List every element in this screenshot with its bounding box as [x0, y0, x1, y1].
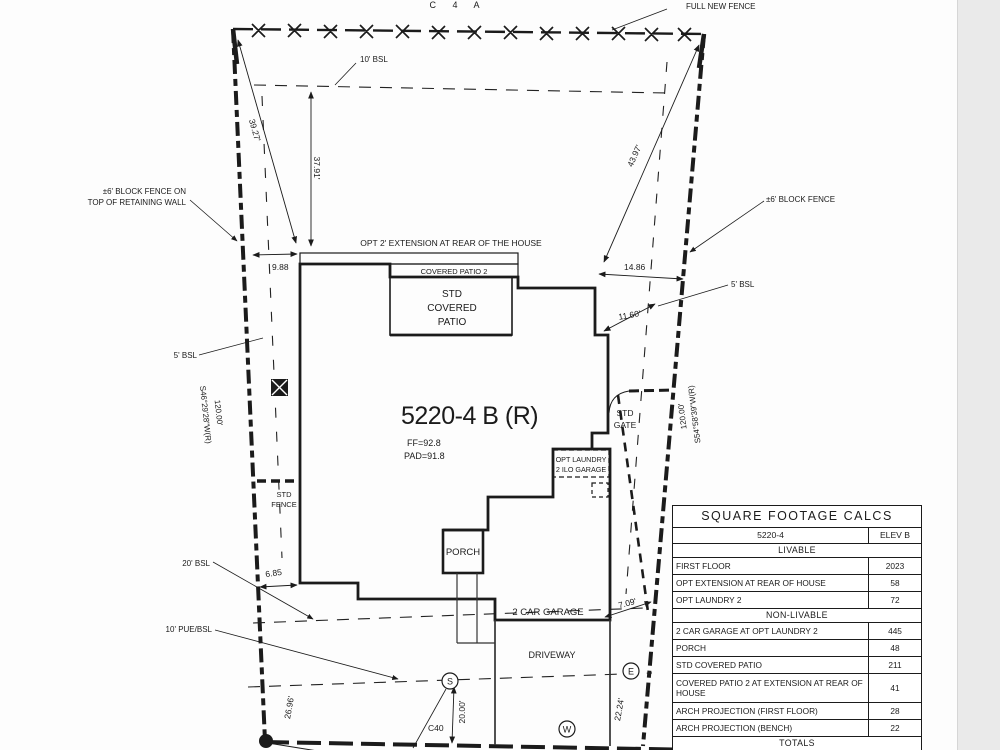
row-label: FIRST FLOOR: [673, 560, 868, 572]
label-std-fence-1: STD: [277, 490, 293, 499]
row-label: COVERED PATIO 2 AT EXTENSION AT REAR OF …: [673, 677, 868, 700]
row-label: OPT EXTENSION AT REAR OF HOUSE: [673, 577, 868, 589]
dim-22-24: 22.24': [612, 697, 626, 722]
table-row: OPT EXTENSION AT REAR OF HOUSE 58: [673, 575, 921, 592]
dim-14-86: 14.86: [624, 262, 646, 272]
label-porch: PORCH: [446, 547, 480, 558]
row-value: 211: [868, 657, 921, 673]
label-driveway: DRIVEWAY: [528, 650, 575, 660]
dim-37-91: 37.91': [312, 157, 322, 180]
dim-43-97: 43.97': [625, 143, 644, 168]
label-pad: PAD=91.8: [404, 451, 445, 461]
table-row: FIRST FLOOR 2023: [673, 558, 921, 575]
table-row: OPT LAUNDRY 2 72: [673, 592, 921, 609]
section-nonlivable: NON-LIVABLE: [673, 609, 921, 623]
bearing-left: S46°29'28"W(R): [198, 385, 213, 444]
square-footage-table: SQUARE FOOTAGE CALCS 5220-4 ELEV B LIVAB…: [672, 505, 922, 750]
section-totals: TOTALS: [673, 737, 921, 750]
opt-extension-strip: [300, 253, 518, 264]
label-std-gate-1: STD: [617, 408, 634, 418]
curve-label-c4a: C 4 A: [429, 0, 486, 10]
label-5-bsl-right: 5' BSL: [731, 280, 755, 289]
row-value: 445: [868, 623, 921, 639]
sewer-marker-letter: S: [447, 677, 453, 687]
label-2-car-garage: 2 CAR GARAGE: [512, 607, 583, 618]
label-full-new-fence: FULL NEW FENCE: [686, 2, 756, 11]
label-std-covered-patio-1: STD: [442, 289, 462, 300]
table-row: STD COVERED PATIO 211: [673, 657, 921, 674]
row-label: STD COVERED PATIO: [673, 659, 868, 671]
row-label: OPT LAUNDRY 2: [673, 594, 868, 606]
label-block-fence-left-2: TOP OF RETAINING WALL: [88, 198, 187, 207]
section-livable: LIVABLE: [673, 544, 921, 558]
label-opt-laundry-2: 2 ILO GARAGE: [556, 465, 607, 474]
table-row: COVERED PATIO 2 AT EXTENSION AT REAR OF …: [673, 674, 921, 703]
dim-26-96: 26.96': [282, 695, 296, 720]
table-row: ARCH PROJECTION (BENCH) 22: [673, 720, 921, 737]
bearing-left-length: 120.00': [213, 399, 225, 426]
site-plan-page: S W E C 4 A FULL NEW FENCE 10' BSL ±6' B…: [0, 0, 1000, 750]
row-value: 48: [868, 640, 921, 656]
row-label: ARCH PROJECTION (FIRST FLOOR): [673, 705, 868, 717]
table-row: 2 CAR GARAGE AT OPT LAUNDRY 2 445: [673, 623, 921, 640]
elevation: ELEV B: [868, 528, 921, 543]
label-block-fence-left-1: ±6' BLOCK FENCE ON: [103, 187, 186, 196]
dim-6-85: 6.85: [265, 567, 283, 579]
model-number: 5220-4: [673, 528, 868, 543]
dim-20-00: 20.00': [457, 700, 467, 723]
table-title: SQUARE FOOTAGE CALCS: [673, 506, 921, 528]
label-10-pue-bsl: 10' PUE/BSL: [166, 625, 213, 634]
table-row: PORCH 48: [673, 640, 921, 657]
plan-id: 5220-4 B (R): [401, 402, 538, 430]
label-opt-extension: OPT 2' EXTENSION AT REAR OF THE HOUSE: [360, 238, 542, 248]
label-std-covered-patio-2: COVERED: [427, 303, 476, 314]
row-label: 2 CAR GARAGE AT OPT LAUNDRY 2: [673, 625, 868, 637]
dim-11-60: 11.60': [618, 308, 642, 322]
label-c40: C40: [428, 723, 444, 733]
label-covered-patio-2: COVERED PATIO 2: [421, 267, 488, 276]
bearing-right: S54°58'39"W(R): [686, 385, 702, 444]
dim-39-27: 39.27': [247, 118, 263, 143]
corner-monument: [259, 734, 273, 748]
row-value: 2023: [868, 558, 921, 574]
label-std-fence-2: FENCE: [271, 500, 296, 509]
table-model-row: 5220-4 ELEV B: [673, 528, 921, 544]
electric-marker-letter: E: [628, 667, 634, 677]
row-value: 28: [868, 703, 921, 719]
label-10-bsl: 10' BSL: [360, 55, 388, 64]
utility-pad-symbol: [271, 379, 288, 396]
label-20-bsl: 20' BSL: [182, 559, 210, 568]
row-value: 22: [868, 720, 921, 736]
bearing-right-length: 120.00': [676, 402, 688, 429]
dim-9-88: 9.88: [272, 262, 289, 272]
label-block-fence-right: ±6' BLOCK FENCE: [766, 195, 835, 204]
label-std-covered-patio-3: PATIO: [438, 317, 467, 328]
row-label: ARCH PROJECTION (BENCH): [673, 722, 868, 734]
row-value: 72: [868, 592, 921, 608]
row-label: PORCH: [673, 642, 868, 654]
table-row: ARCH PROJECTION (FIRST FLOOR) 28: [673, 703, 921, 720]
label-opt-laundry-1: OPT LAUNDRY: [556, 455, 607, 464]
water-marker-letter: W: [563, 725, 572, 735]
label-ff: FF=92.8: [407, 438, 441, 448]
label-std-gate-2: GATE: [614, 420, 637, 430]
label-5-bsl-left: 5' BSL: [174, 351, 198, 360]
row-value: 41: [868, 674, 921, 702]
row-value: 58: [868, 575, 921, 591]
